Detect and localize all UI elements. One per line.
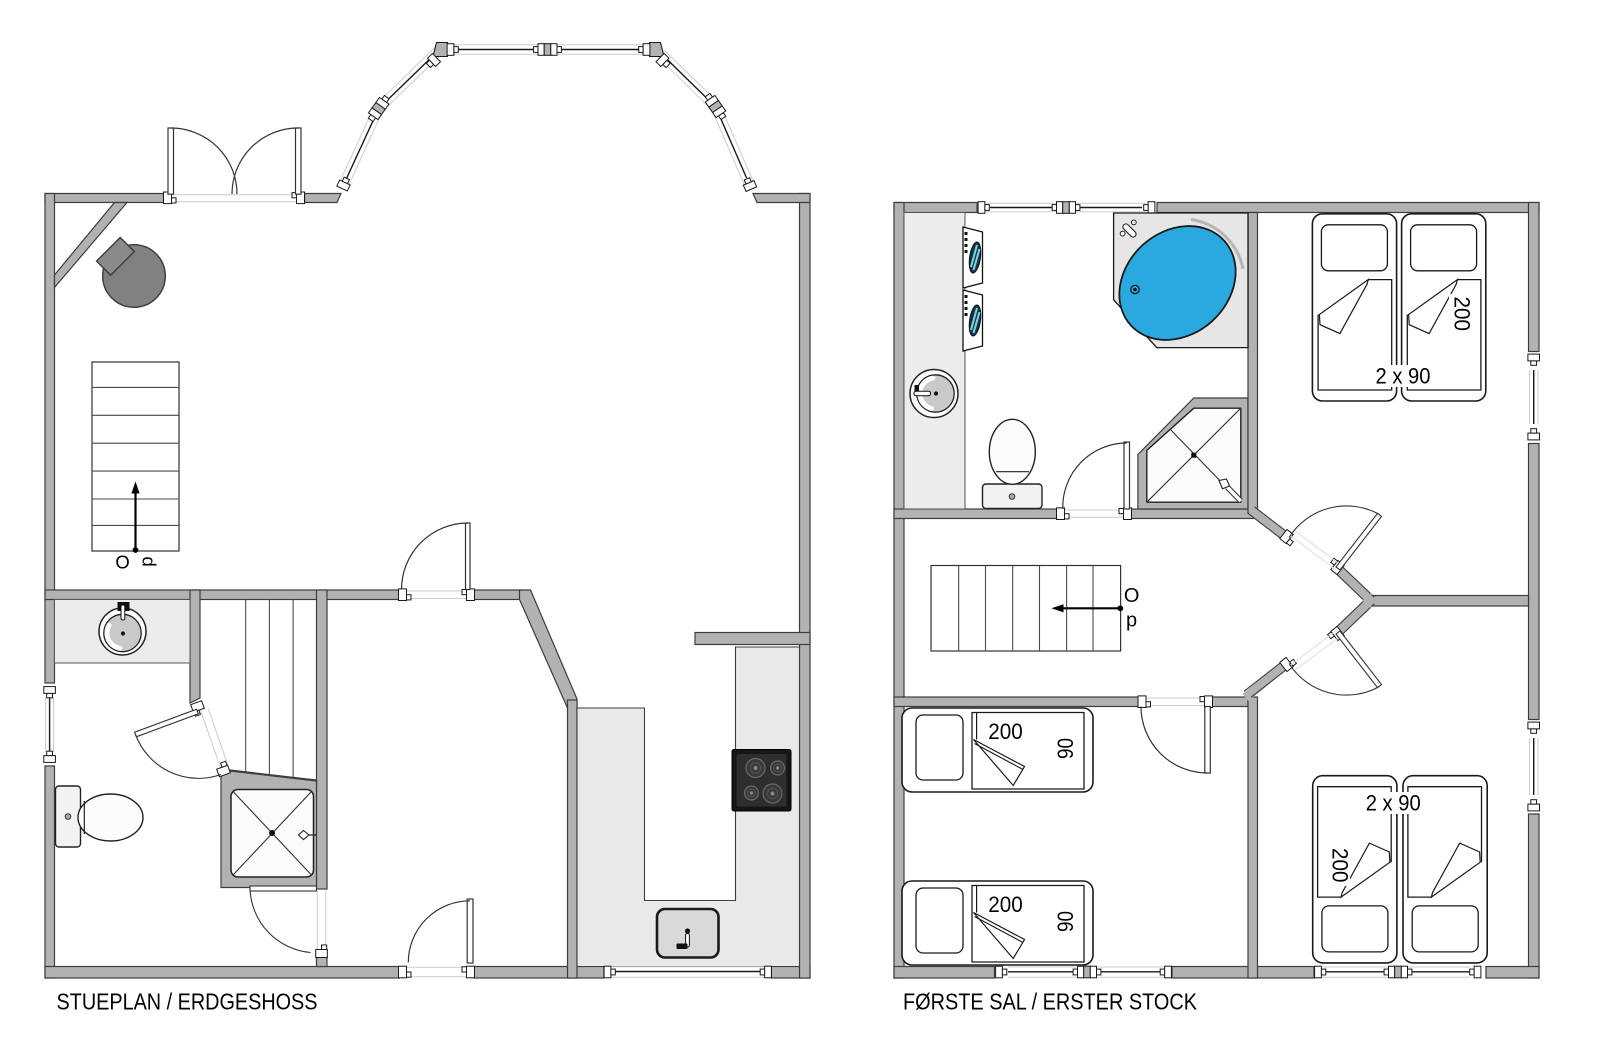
svg-text:2 x 90: 2 x 90 — [1366, 791, 1421, 816]
svg-text:O: O — [115, 552, 129, 573]
svg-text:2 x 90: 2 x 90 — [1376, 364, 1431, 389]
svg-text:STUEPLAN / ERDGESHOSS: STUEPLAN / ERDGESHOSS — [57, 989, 318, 1015]
svg-text:p: p — [136, 557, 157, 567]
svg-text:200: 200 — [1327, 848, 1352, 883]
svg-text:90: 90 — [1053, 911, 1078, 932]
svg-text:O: O — [1124, 585, 1140, 607]
svg-text:FØRSTE SAL / ERSTER STOCK: FØRSTE SAL / ERSTER STOCK — [903, 989, 1198, 1015]
svg-text:90: 90 — [1053, 738, 1078, 759]
svg-text:200: 200 — [988, 719, 1023, 744]
svg-text:p: p — [1126, 610, 1137, 632]
svg-text:200: 200 — [1450, 296, 1475, 331]
svg-text:200: 200 — [988, 892, 1023, 917]
